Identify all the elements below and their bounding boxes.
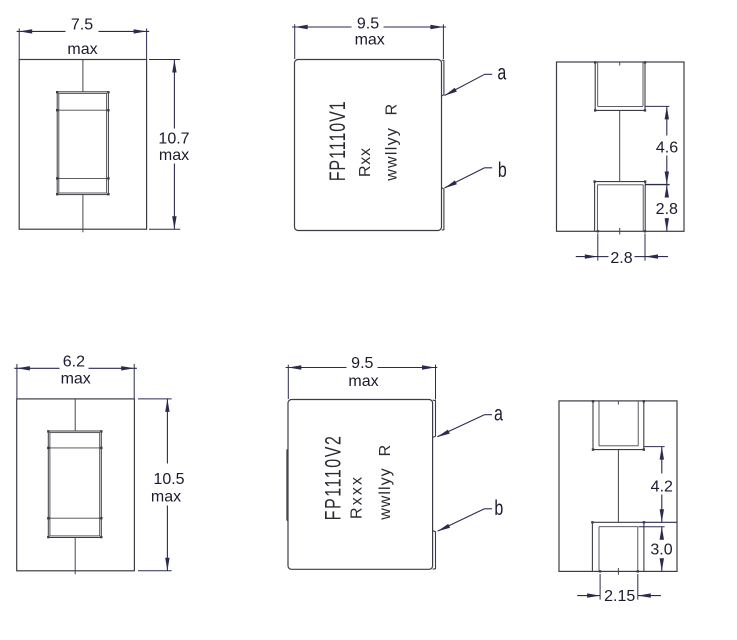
- svg-text:max: max: [348, 373, 378, 390]
- svg-text:2.15: 2.15: [604, 588, 635, 605]
- svg-text:7.5: 7.5: [71, 17, 93, 34]
- svg-text:10.5: 10.5: [153, 471, 184, 488]
- svg-text:Rxx: Rxx: [357, 148, 374, 177]
- svg-text:4.2: 4.2: [651, 479, 673, 496]
- svg-text:4.6: 4.6: [656, 139, 678, 156]
- svg-text:max: max: [151, 489, 181, 506]
- svg-text:max: max: [67, 41, 97, 58]
- svg-text:9.5: 9.5: [357, 15, 379, 32]
- svg-text:max: max: [355, 32, 385, 49]
- svg-text:wwllyy R: wwllyy R: [377, 445, 394, 521]
- svg-text:wwllyy R: wwllyy R: [384, 104, 401, 182]
- svg-text:Rxxx: Rxxx: [348, 477, 365, 519]
- svg-text:2.8: 2.8: [656, 201, 678, 218]
- svg-text:6.2: 6.2: [63, 353, 85, 370]
- svg-text:FP1110V1: FP1110V1: [326, 101, 350, 181]
- svg-text:max: max: [159, 147, 189, 164]
- svg-text:10.7: 10.7: [158, 131, 189, 148]
- svg-text:2.8: 2.8: [610, 250, 632, 267]
- svg-text:b: b: [494, 496, 503, 520]
- svg-text:max: max: [61, 370, 91, 387]
- svg-text:9.5: 9.5: [351, 355, 373, 372]
- svg-text:a: a: [497, 60, 506, 84]
- svg-text:a: a: [494, 402, 503, 426]
- svg-text:3.0: 3.0: [650, 542, 672, 559]
- svg-text:b: b: [498, 158, 507, 182]
